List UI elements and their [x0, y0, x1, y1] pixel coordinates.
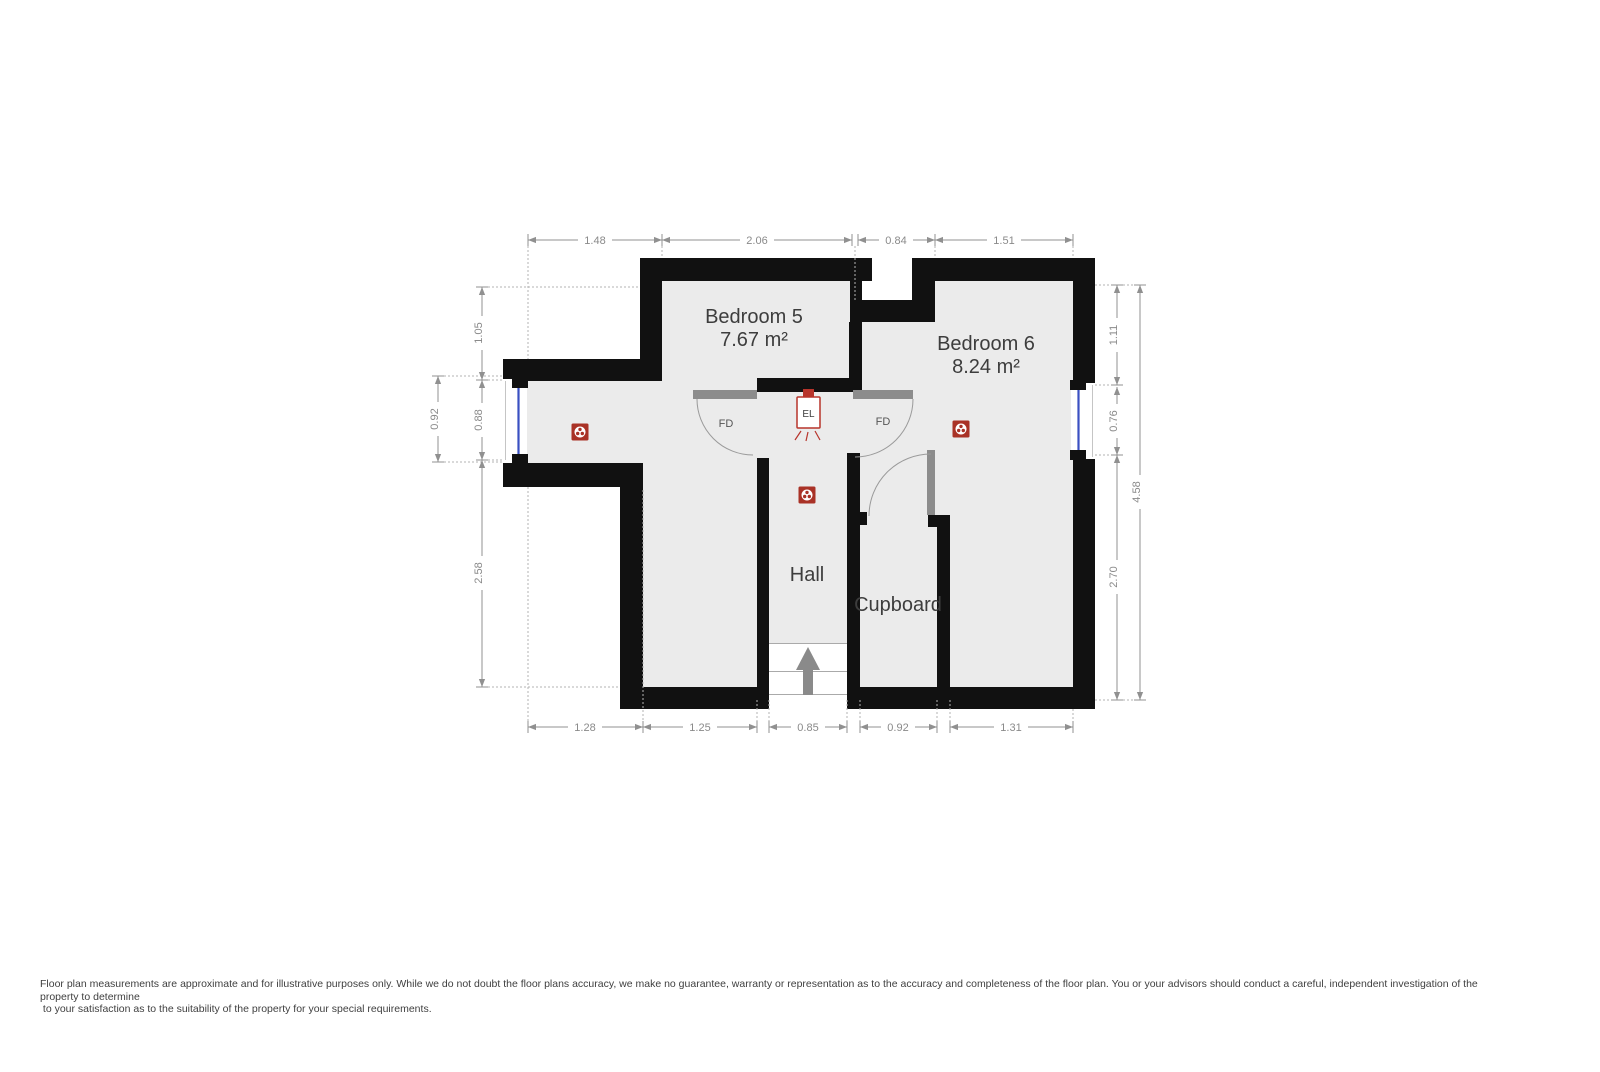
wall-left-arm-top — [503, 359, 662, 381]
dim-label: 4.58 — [1131, 481, 1143, 502]
dim-label: 1.31 — [1000, 722, 1021, 734]
dim-label: 1.28 — [574, 722, 595, 734]
dim-label: 2.06 — [746, 235, 767, 247]
room-label-bedroom6: Bedroom 6 — [937, 333, 1035, 355]
wall-left-arm-bottom — [503, 463, 643, 487]
smoke-detector-icon — [953, 421, 970, 438]
dimension-chain-top: 1.48 2.06 0.84 1.51 — [528, 233, 1073, 247]
floor-hall-lower — [643, 463, 769, 687]
dim-label: 1.25 — [689, 722, 710, 734]
wall-notch-bottom — [850, 300, 935, 322]
window-cap — [1070, 450, 1086, 460]
window-cap — [1070, 380, 1086, 390]
el-label: EL — [802, 409, 815, 420]
dim-label: 0.92 — [429, 408, 441, 429]
wall-cupboard-left — [847, 453, 860, 709]
smoke-detector-icon — [799, 487, 816, 504]
room-area-bedroom6: 8.24 m² — [952, 356, 1020, 378]
dim-label: 2.70 — [1108, 566, 1120, 587]
disclaimer: Floor plan measurements are approximate … — [40, 978, 1478, 1016]
smoke-detector-icon — [572, 424, 589, 441]
window-cap — [512, 454, 528, 464]
wall-bedroom5-top — [640, 258, 872, 281]
window-opening — [501, 379, 527, 462]
dim-label: 0.85 — [797, 722, 818, 734]
wall-cupboard-right — [937, 525, 950, 709]
dim-label: 0.92 — [887, 722, 908, 734]
window-cap — [512, 378, 528, 388]
wall-notch-left — [850, 281, 862, 302]
wall-lower-left — [620, 487, 643, 709]
window-left — [501, 378, 528, 464]
dim-label: 1.11 — [1108, 325, 1120, 346]
dim-label: 1.05 — [473, 322, 485, 343]
disclaimer-line: to your satisfaction as to the suitabili… — [40, 1003, 1478, 1016]
window-right — [1070, 380, 1097, 460]
dimension-chain-bottom: 1.28 1.25 0.85 0.92 1.31 — [528, 720, 1073, 734]
wall-cupboard-right-nub — [928, 515, 950, 527]
room-area-bedroom5: 7.67 m² — [720, 329, 788, 351]
dim-label: 1.51 — [993, 235, 1014, 247]
disclaimer-line: Floor plan measurements are approximate … — [40, 978, 1478, 991]
stairs — [769, 643, 847, 711]
disclaimer-line: property to determine — [40, 991, 1478, 1004]
dim-label: 1.48 — [584, 235, 605, 247]
door-lintel-bar — [693, 390, 757, 399]
wall-bedroom6-top — [912, 258, 1095, 281]
floor-corridor — [769, 392, 847, 687]
wall-bottom-left — [620, 687, 769, 709]
dim-label: 0.76 — [1108, 410, 1120, 431]
wall-notch-right — [912, 281, 935, 302]
wall-corridor-left — [757, 458, 769, 709]
wall-bottom-right — [847, 687, 1095, 709]
floor-plan: EL Bedroom 5 7.67 m² Bedroom 6 8.24 m² H… — [0, 0, 1600, 1067]
door-lintel-bar — [853, 390, 913, 399]
fd-label-left: FD — [719, 418, 734, 430]
fd-label-right: FD — [876, 416, 891, 428]
wall-right-upper — [1073, 258, 1095, 385]
room-label-hall: Hall — [790, 564, 824, 586]
dimension-chain-left: 1.05 0.88 2.58 0.92 — [429, 287, 489, 687]
door-leaf — [927, 450, 935, 515]
window-opening — [1071, 383, 1097, 459]
dim-label: 0.84 — [885, 235, 906, 247]
room-label-bedroom5: Bedroom 5 — [705, 306, 803, 328]
wall-right-lower — [1073, 455, 1095, 709]
room-label-cupboard: Cupboard — [854, 594, 942, 616]
dim-label: 2.58 — [473, 562, 485, 583]
dimension-chain-right: 1.11 0.76 2.70 4.58 — [1108, 285, 1147, 700]
dim-label: 0.88 — [473, 409, 485, 430]
wall-cupboard-left-nub — [847, 512, 867, 525]
